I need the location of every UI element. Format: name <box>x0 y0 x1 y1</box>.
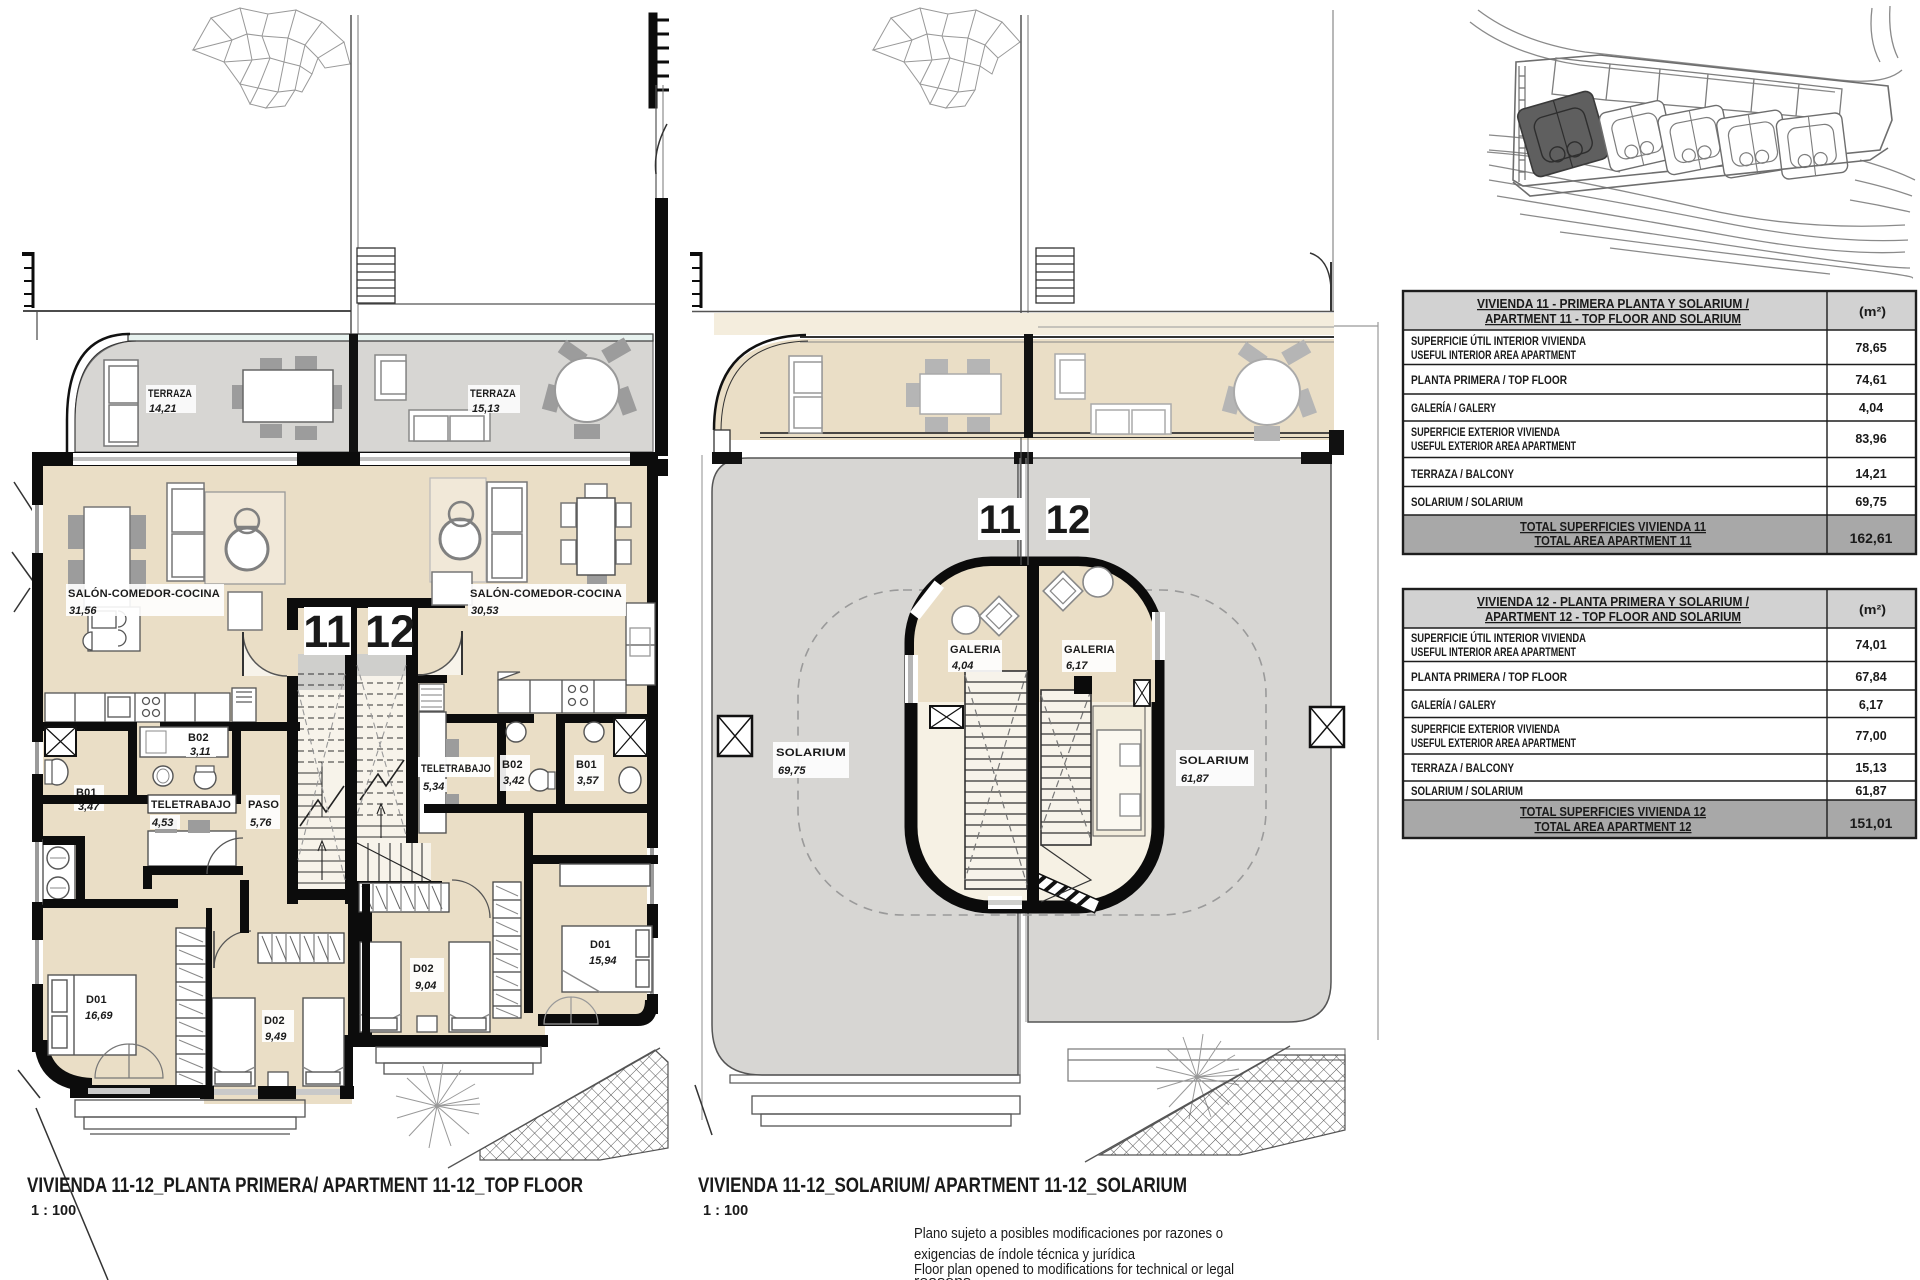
svg-text:61,87: 61,87 <box>1181 773 1209 785</box>
svg-text:TERRAZA: TERRAZA <box>148 388 192 400</box>
svg-text:(m²): (m²) <box>1859 603 1886 617</box>
svg-text:SALÓN-COMEDOR-COCINA: SALÓN-COMEDOR-COCINA <box>470 587 622 600</box>
svg-text:61,87: 61,87 <box>1855 784 1886 798</box>
svg-text:SOLARIUM: SOLARIUM <box>776 747 846 759</box>
svg-text:SALÓN-COMEDOR-COCINA: SALÓN-COMEDOR-COCINA <box>68 587 220 600</box>
svg-text:B02: B02 <box>502 759 523 771</box>
svg-text:SUPERFICIE EXTERIOR VIVIENDA: SUPERFICIE EXTERIOR VIVIENDA <box>1411 724 1560 736</box>
svg-text:14,21: 14,21 <box>1855 467 1886 481</box>
svg-text:83,96: 83,96 <box>1855 432 1886 446</box>
svg-text:15,94: 15,94 <box>589 955 617 967</box>
svg-text:VIVIENDA 11-12_PLANTA PRIMERA/: VIVIENDA 11-12_PLANTA PRIMERA/ APARTMENT… <box>27 1174 583 1197</box>
svg-text:TELETRABAJO: TELETRABAJO <box>421 763 491 775</box>
svg-text:SOLARIUM: SOLARIUM <box>1179 755 1249 767</box>
svg-text:31,56: 31,56 <box>69 605 97 617</box>
svg-text:GALERÍA / GALERY: GALERÍA / GALERY <box>1411 699 1496 712</box>
svg-text:TOTAL SUPERFICIES VIVIENDA 11: TOTAL SUPERFICIES VIVIENDA 11 <box>1520 520 1706 534</box>
svg-text:5,76: 5,76 <box>250 817 272 829</box>
svg-text:VIVIENDA 11-12_SOLARIUM/ APART: VIVIENDA 11-12_SOLARIUM/ APARTMENT 11-12… <box>698 1174 1187 1197</box>
svg-text:GALERIA: GALERIA <box>1064 644 1115 656</box>
svg-text:SUPERFICIE EXTERIOR VIVIENDA: SUPERFICIE EXTERIOR VIVIENDA <box>1411 427 1560 439</box>
svg-text:1 : 100: 1 : 100 <box>31 1203 76 1219</box>
svg-text:D02: D02 <box>264 1015 285 1027</box>
svg-text:6,17: 6,17 <box>1066 660 1088 672</box>
svg-text:D01: D01 <box>86 994 107 1006</box>
svg-text:16,69: 16,69 <box>85 1010 113 1022</box>
svg-text:TERRAZA / BALCONY: TERRAZA / BALCONY <box>1411 469 1514 481</box>
svg-text:15,13: 15,13 <box>472 403 500 415</box>
svg-text:APARTMENT 11 - TOP FLOOR AND S: APARTMENT 11 - TOP FLOOR AND SOLARIUM <box>1485 312 1741 326</box>
svg-text:reasons: reasons <box>914 1273 971 1280</box>
svg-text:B01: B01 <box>576 759 597 771</box>
svg-text:4,53: 4,53 <box>151 817 173 829</box>
svg-text:USEFUL EXTERIOR AREA APARTMENT: USEFUL EXTERIOR AREA APARTMENT <box>1411 738 1576 750</box>
svg-text:TOTAL SUPERFICIES VIVIENDA 12: TOTAL SUPERFICIES VIVIENDA 12 <box>1520 805 1706 819</box>
svg-text:12: 12 <box>365 606 415 657</box>
svg-text:USEFUL EXTERIOR AREA APARTMENT: USEFUL EXTERIOR AREA APARTMENT <box>1411 441 1576 453</box>
svg-text:3,57: 3,57 <box>577 775 599 787</box>
svg-text:162,61: 162,61 <box>1850 530 1893 546</box>
svg-text:APARTMENT 12 - TOP FLOOR AND S: APARTMENT 12 - TOP FLOOR AND SOLARIUM <box>1485 610 1741 624</box>
svg-text:151,01: 151,01 <box>1850 815 1893 831</box>
svg-text:67,84: 67,84 <box>1855 670 1886 684</box>
svg-text:12: 12 <box>1046 498 1091 542</box>
svg-text:VIVIENDA 11 - PRIMERA PLANTA Y: VIVIENDA 11 - PRIMERA PLANTA Y SOLARIUM … <box>1477 297 1749 311</box>
svg-text:(m²): (m²) <box>1859 305 1886 319</box>
svg-text:11: 11 <box>979 498 1021 542</box>
svg-text:D02: D02 <box>413 963 434 975</box>
svg-text:TERRAZA / BALCONY: TERRAZA / BALCONY <box>1411 763 1514 775</box>
svg-text:TOTAL AREA APARTMENT 11: TOTAL AREA APARTMENT 11 <box>1535 534 1692 548</box>
svg-text:9,04: 9,04 <box>415 980 436 992</box>
svg-text:14,21: 14,21 <box>149 403 177 415</box>
svg-text:Plano sujeto a posibles modifi: Plano sujeto a posibles modificaciones p… <box>914 1225 1223 1242</box>
svg-text:USEFUL INTERIOR AREA APARTMENT: USEFUL INTERIOR AREA APARTMENT <box>1411 647 1576 659</box>
svg-text:GALERÍA / GALERY: GALERÍA / GALERY <box>1411 402 1496 415</box>
svg-text:PASO: PASO <box>248 799 279 811</box>
svg-text:78,65: 78,65 <box>1855 341 1886 355</box>
svg-text:6,17: 6,17 <box>1859 698 1883 712</box>
svg-text:TERRAZA: TERRAZA <box>470 388 516 400</box>
svg-text:11: 11 <box>303 606 351 657</box>
svg-text:77,00: 77,00 <box>1855 729 1886 743</box>
svg-text:1 : 100: 1 : 100 <box>703 1203 748 1219</box>
svg-text:SOLARIUM / SOLARIUM: SOLARIUM / SOLARIUM <box>1411 497 1523 509</box>
svg-text:USEFUL INTERIOR AREA APARTMENT: USEFUL INTERIOR AREA APARTMENT <box>1411 350 1576 362</box>
svg-text:74,61: 74,61 <box>1855 373 1886 387</box>
svg-text:69,75: 69,75 <box>1855 495 1886 509</box>
svg-text:3,11: 3,11 <box>190 746 211 758</box>
svg-text:9,49: 9,49 <box>265 1031 287 1043</box>
svg-text:PLANTA PRIMERA / TOP FLOOR: PLANTA PRIMERA / TOP FLOOR <box>1411 375 1568 387</box>
svg-text:69,75: 69,75 <box>778 765 806 777</box>
svg-text:VIVIENDA 12 - PLANTA PRIMERA Y: VIVIENDA 12 - PLANTA PRIMERA Y SOLARIUM … <box>1477 595 1749 609</box>
svg-text:4,04: 4,04 <box>1859 401 1883 415</box>
svg-text:TOTAL AREA APARTMENT 12: TOTAL AREA APARTMENT 12 <box>1535 820 1692 834</box>
svg-text:30,53: 30,53 <box>471 605 499 617</box>
svg-text:5,34: 5,34 <box>423 781 444 793</box>
svg-text:SUPERFICIE ÚTIL INTERIOR VIVIE: SUPERFICIE ÚTIL INTERIOR VIVIENDA <box>1411 632 1586 645</box>
svg-text:D01: D01 <box>590 939 611 951</box>
svg-text:GALERIA: GALERIA <box>950 644 1001 656</box>
svg-text:B02: B02 <box>188 732 209 744</box>
svg-text:3,42: 3,42 <box>503 775 524 787</box>
svg-text:15,13: 15,13 <box>1855 761 1886 775</box>
svg-text:4,04: 4,04 <box>951 660 973 672</box>
svg-text:PLANTA PRIMERA / TOP FLOOR: PLANTA PRIMERA / TOP FLOOR <box>1411 672 1568 684</box>
svg-text:SUPERFICIE ÚTIL INTERIOR VIVIE: SUPERFICIE ÚTIL INTERIOR VIVIENDA <box>1411 335 1586 348</box>
svg-text:SOLARIUM / SOLARIUM: SOLARIUM / SOLARIUM <box>1411 786 1523 798</box>
svg-text:74,01: 74,01 <box>1855 638 1886 652</box>
svg-text:TELETRABAJO: TELETRABAJO <box>151 799 231 811</box>
